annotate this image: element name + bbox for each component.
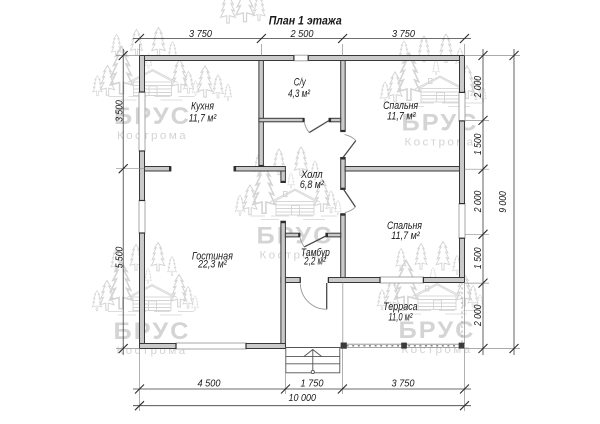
svg-text:5 500: 5 500: [114, 246, 125, 268]
svg-text:6,8 м²: 6,8 м²: [300, 179, 324, 191]
svg-text:2 500: 2 500: [290, 29, 314, 40]
svg-text:10 000: 10 000: [289, 393, 317, 404]
svg-text:2 000: 2 000: [473, 190, 484, 213]
svg-text:3 750: 3 750: [189, 29, 212, 40]
svg-text:1 500: 1 500: [473, 133, 484, 155]
svg-text:9 000: 9 000: [498, 191, 509, 213]
svg-text:План 1 этажа: План 1 этажа: [269, 13, 342, 27]
svg-text:3 750: 3 750: [392, 29, 415, 40]
svg-text:2,2 м²: 2,2 м²: [303, 255, 326, 267]
svg-text:11,0 м²: 11,0 м²: [388, 312, 412, 324]
svg-text:Кухня: Кухня: [191, 100, 214, 112]
svg-text:11,7 м²: 11,7 м²: [189, 112, 217, 124]
svg-text:1 500: 1 500: [473, 247, 484, 269]
svg-text:3 750: 3 750: [392, 378, 415, 389]
svg-text:1 750: 1 750: [301, 378, 324, 389]
svg-text:С/у: С/у: [294, 76, 306, 88]
svg-text:22,3 м²: 22,3 м²: [197, 259, 227, 271]
svg-text:11,7 м²: 11,7 м²: [387, 110, 416, 122]
svg-text:4,3 м²: 4,3 м²: [288, 88, 310, 100]
svg-text:11,7 м²: 11,7 м²: [391, 230, 420, 242]
svg-text:4 500: 4 500: [198, 378, 221, 389]
svg-text:2 000: 2 000: [473, 304, 484, 327]
svg-text:2 000: 2 000: [473, 76, 484, 99]
svg-text:3 500: 3 500: [114, 100, 125, 122]
